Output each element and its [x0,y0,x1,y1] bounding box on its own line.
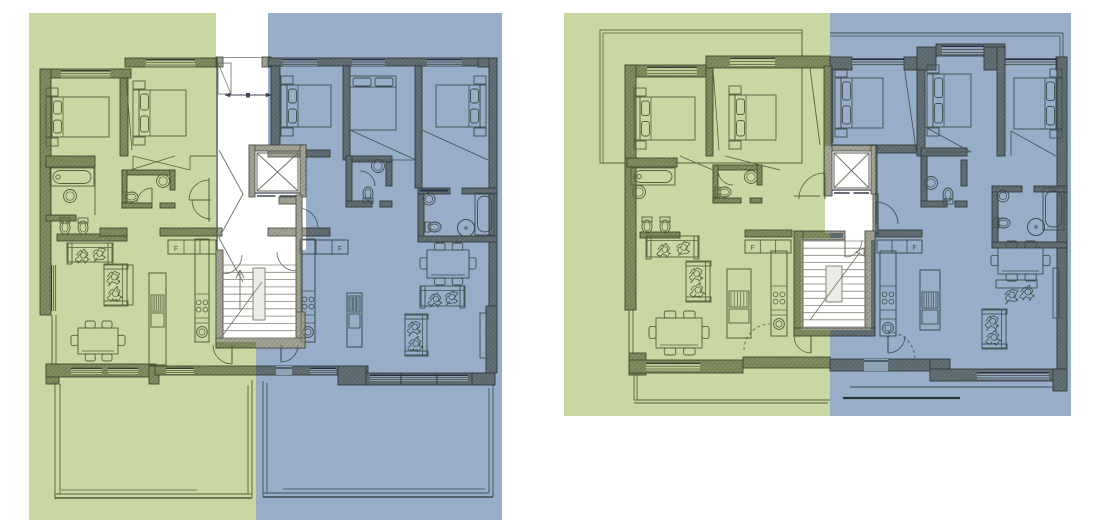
svg-text:F: F [912,245,916,252]
svg-text:F: F [174,246,178,253]
svg-text:F: F [338,246,342,253]
svg-text:F: F [751,245,755,252]
